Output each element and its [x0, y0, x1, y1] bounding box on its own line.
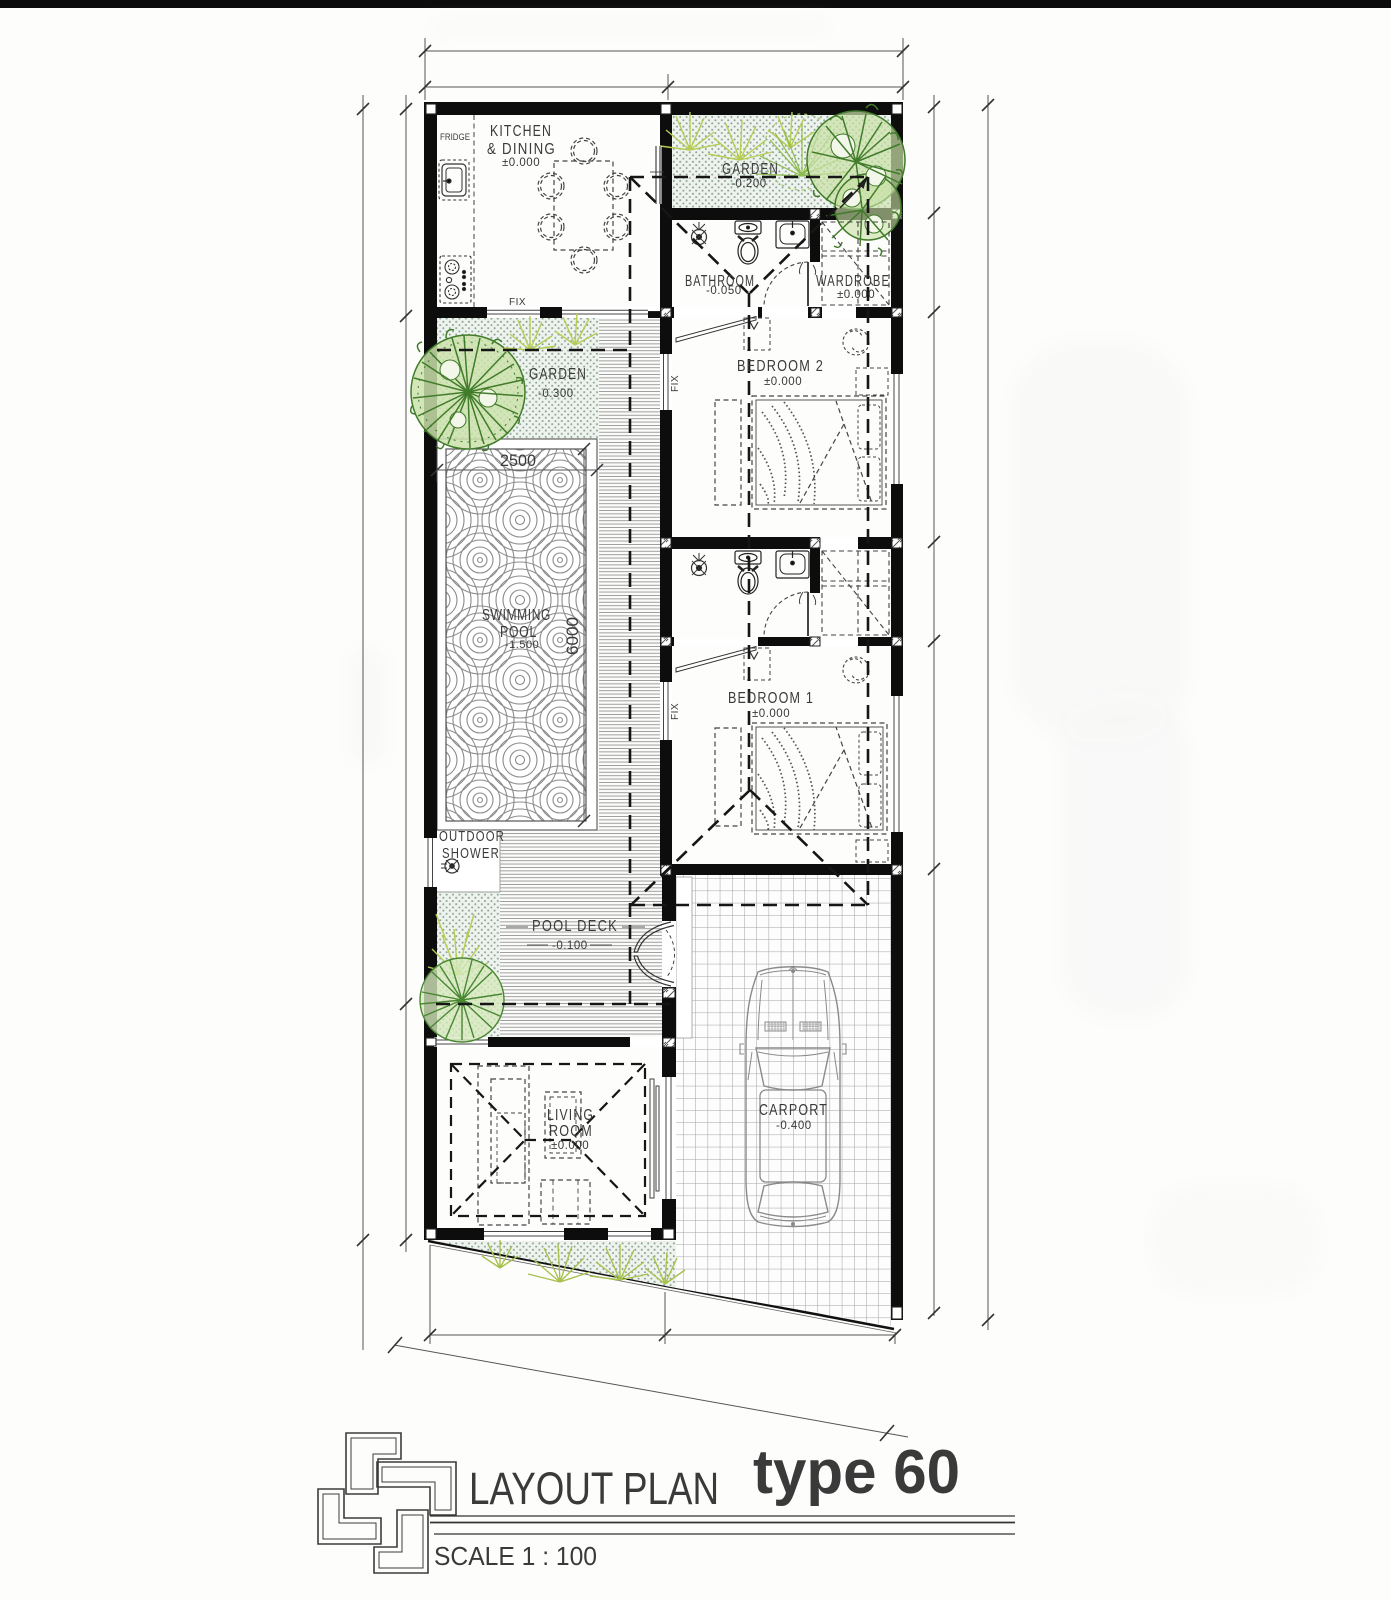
svg-text:-0.100: -0.100 — [552, 940, 588, 952]
svg-text:GARDEN: GARDEN — [722, 161, 779, 178]
svg-text:FIX: FIX — [509, 297, 526, 308]
svg-text:CARPORT: CARPORT — [759, 1102, 828, 1119]
svg-text:-0.200: -0.200 — [731, 178, 767, 190]
svg-text:FRIDGE: FRIDGE — [440, 132, 470, 143]
svg-text:LAYOUT PLAN: LAYOUT PLAN — [469, 1463, 719, 1514]
svg-text:±0.000: ±0.000 — [752, 708, 790, 720]
svg-text:SWIMMING: SWIMMING — [482, 607, 551, 624]
svg-text:BEDROOM 1: BEDROOM 1 — [728, 690, 814, 707]
svg-text:& DINING: & DINING — [487, 141, 556, 158]
svg-text:6000: 6000 — [563, 617, 582, 655]
svg-text:-0.400: -0.400 — [776, 1120, 812, 1132]
svg-text:-0.050: -0.050 — [706, 285, 742, 297]
svg-text:LIVING: LIVING — [547, 1107, 594, 1124]
svg-text:KITCHEN: KITCHEN — [490, 123, 552, 140]
svg-text:POOL DECK: POOL DECK — [532, 918, 618, 935]
svg-text:type 60: type 60 — [753, 1438, 960, 1507]
svg-text:FIX: FIX — [670, 703, 681, 720]
svg-text:±0.000: ±0.000 — [502, 157, 540, 169]
svg-text:SHOWER: SHOWER — [442, 846, 500, 862]
svg-text:±0.000: ±0.000 — [551, 1140, 589, 1152]
svg-text:WARDROBE: WARDROBE — [816, 273, 890, 290]
svg-text:FIX: FIX — [670, 375, 681, 392]
svg-text:ROOM: ROOM — [549, 1123, 593, 1140]
svg-text:OUTDOOR: OUTDOOR — [439, 829, 505, 845]
svg-text:-1.500: -1.500 — [505, 639, 539, 651]
svg-text:-0.300: -0.300 — [538, 388, 574, 400]
svg-text:BEDROOM 2: BEDROOM 2 — [737, 358, 824, 375]
svg-text:SCALE 1 : 100: SCALE 1 : 100 — [434, 1541, 597, 1571]
svg-text:2500: 2500 — [500, 451, 536, 470]
svg-text:GARDEN: GARDEN — [529, 366, 587, 383]
svg-text:±0.000: ±0.000 — [764, 376, 802, 388]
svg-text:±0.000: ±0.000 — [837, 289, 875, 301]
